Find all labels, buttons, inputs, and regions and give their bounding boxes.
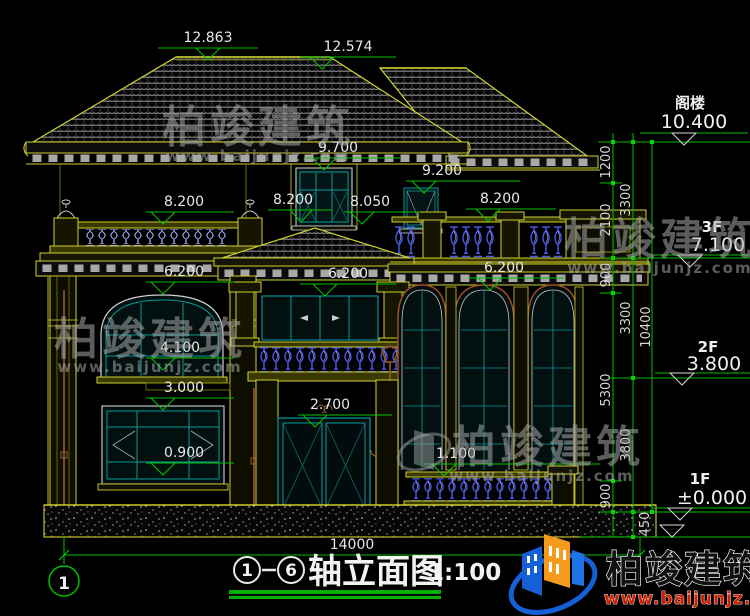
- dim-mid-3300a: 3300: [619, 183, 634, 216]
- dim-foundation-450: 450: [638, 512, 653, 537]
- brand-logo: 柏竣建筑 www.baijunjz.com: [503, 534, 750, 616]
- title-axis-end: 6: [285, 561, 297, 581]
- entry-double-door: [278, 418, 370, 512]
- elevation-drawing: 12.863 12.574 9.700 9.200 8.200 8.200 8.…: [0, 0, 750, 616]
- elev-label: 8.200: [164, 194, 204, 210]
- level-mark-main-ridge: 12.863: [158, 30, 258, 60]
- level-mark-left-parapet: 8.200: [146, 194, 234, 224]
- elev-label: 8.200: [273, 192, 313, 208]
- elev-label: 8.050: [350, 194, 390, 210]
- floor-attic-elev: 10.400: [661, 111, 727, 133]
- floor-1f-label: 1F: [690, 470, 711, 488]
- title-scale: 1:100: [428, 560, 501, 586]
- watermark-brand: 柏竣建筑: [564, 214, 750, 265]
- elev-label: 8.200: [480, 191, 520, 207]
- axis-bubble-1: 1: [49, 566, 79, 596]
- elev-label: 2.700: [310, 397, 350, 413]
- elev-label: 6.200: [484, 260, 524, 276]
- watermark-url: www.baijunjz.com: [449, 467, 634, 485]
- title-text: 轴立面图: [308, 552, 444, 592]
- watermark-top: 柏竣建筑 www.baijunjz.com: [162, 102, 354, 165]
- floor-attic-label: 阁楼: [675, 94, 705, 112]
- watermark-url: www.baijunjz.com: [165, 147, 350, 165]
- dim-inner-1200: 1200: [599, 145, 614, 178]
- elev-label: 6.200: [164, 264, 204, 280]
- title-underline: [229, 590, 441, 594]
- axis-bubble-number: 1: [58, 574, 70, 594]
- left-roof-terrace-balustrade: [50, 200, 266, 253]
- floor-1f-elev: ±0.000: [677, 487, 747, 509]
- floor-2f-elev: 3.800: [687, 353, 741, 375]
- elev-label: 0.900: [164, 445, 204, 461]
- logo-url-text: www.baijunjz.com: [604, 589, 750, 609]
- logo-buildings-icon: [503, 534, 603, 616]
- cad-elevation-canvas: 12.863 12.574 9.700 9.200 8.200 8.200 8.…: [0, 0, 750, 616]
- elev-label: 12.863: [184, 30, 233, 46]
- overall-width-dim: 14000: [330, 537, 375, 553]
- watermark-brand: 柏竣建筑: [452, 422, 644, 473]
- title-underline-2: [229, 596, 441, 599]
- watermark-left: 柏竣建筑 www.baijunjz.com: [54, 314, 246, 376]
- watermark-brand: 柏竣建筑: [162, 102, 354, 153]
- elev-label: 9.200: [422, 163, 462, 179]
- watermark-right: 柏竣建筑 www.baijunjz.com: [564, 214, 750, 277]
- dim-mid-3300b: 3300: [619, 301, 634, 334]
- dim-total-10400: 10400: [639, 306, 654, 347]
- balcony-sliding-door: [262, 296, 378, 340]
- watermark-url: www.baijunjz.com: [567, 259, 750, 277]
- drawing-title: 1 6 轴立面图 1:100: [229, 552, 501, 599]
- elev-label: 6.200: [328, 266, 368, 282]
- title-axis-start: 1: [241, 561, 253, 581]
- logo-brand-text: 柏竣建筑: [606, 548, 750, 591]
- elev-label: 3.000: [164, 380, 204, 396]
- watermark-url: www.baijunjz.com: [57, 358, 242, 376]
- dim-inner-900b: 900: [599, 484, 614, 509]
- watermark-building-icon: [414, 430, 434, 470]
- elev-label: 12.574: [324, 39, 373, 55]
